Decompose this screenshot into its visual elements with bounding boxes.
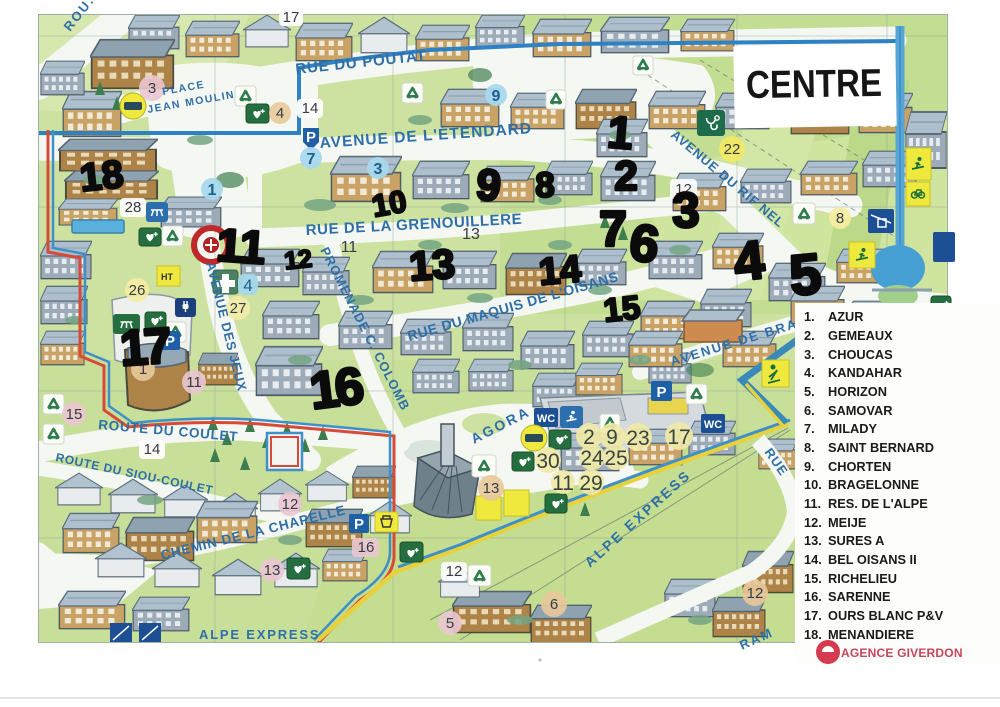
svg-text:25: 25	[604, 447, 627, 470]
svg-text:GEMEAUX: GEMEAUX	[828, 328, 893, 343]
svg-text:HT: HT	[161, 272, 173, 282]
svg-text:AZUR: AZUR	[828, 309, 864, 324]
svg-text:18.: 18.	[804, 627, 822, 642]
svg-text:3.: 3.	[804, 347, 815, 362]
svg-text:RICHELIEU: RICHELIEU	[828, 571, 897, 586]
svg-text:RES. DE L'ALPE: RES. DE L'ALPE	[828, 496, 928, 511]
svg-text:10.: 10.	[804, 477, 822, 492]
svg-text:1.: 1.	[804, 309, 815, 324]
svg-text:13.: 13.	[804, 533, 822, 548]
svg-text:7.: 7.	[804, 421, 815, 436]
svg-text:MILADY: MILADY	[828, 421, 878, 436]
svg-text:9: 9	[474, 160, 503, 211]
svg-text:3: 3	[374, 161, 383, 178]
svg-text:CHOUCAS: CHOUCAS	[828, 347, 893, 362]
svg-text:1: 1	[208, 182, 217, 199]
svg-text:23: 23	[626, 427, 649, 450]
svg-text:P: P	[354, 516, 364, 533]
svg-text:ALPE EXPRESS: ALPE EXPRESS	[199, 627, 320, 642]
svg-text:WC: WC	[537, 413, 555, 425]
svg-text:AGENCE GIVERDON: AGENCE GIVERDON	[841, 646, 963, 660]
svg-text:6: 6	[550, 596, 558, 613]
svg-text:13: 13	[264, 562, 281, 579]
svg-text:14: 14	[144, 441, 161, 458]
svg-text:11: 11	[186, 374, 202, 391]
svg-text:14: 14	[302, 100, 319, 117]
svg-text:15: 15	[66, 406, 83, 423]
svg-text:2: 2	[583, 426, 595, 449]
svg-text:15: 15	[602, 288, 642, 329]
svg-text:18: 18	[78, 153, 126, 200]
svg-text:12: 12	[282, 496, 299, 513]
svg-text:3: 3	[672, 184, 699, 238]
svg-text:P: P	[656, 384, 666, 401]
svg-text:8.: 8.	[804, 440, 815, 455]
svg-text:KANDAHAR: KANDAHAR	[828, 365, 902, 380]
svg-text:17: 17	[283, 9, 300, 26]
svg-text:11.: 11.	[804, 496, 821, 511]
svg-text:SAINT BERNARD: SAINT BERNARD	[828, 440, 934, 455]
svg-text:14.: 14.	[804, 552, 822, 567]
svg-text:12: 12	[446, 563, 463, 580]
svg-text:MEIJE: MEIJE	[828, 515, 867, 530]
svg-text:5: 5	[446, 615, 454, 632]
svg-text:SURES A: SURES A	[828, 533, 884, 548]
svg-text:13: 13	[408, 240, 457, 289]
svg-text:9: 9	[606, 426, 618, 449]
svg-text:CENTRE: CENTRE	[746, 62, 883, 107]
svg-text:16: 16	[358, 539, 375, 556]
svg-text:15.: 15.	[804, 571, 822, 586]
svg-text:24: 24	[580, 447, 604, 470]
svg-text:16.: 16.	[804, 589, 822, 604]
svg-text:17: 17	[667, 426, 690, 449]
svg-text:MENANDIERE: MENANDIERE	[828, 627, 914, 642]
svg-text:OURS BLANC P&V: OURS BLANC P&V	[828, 608, 944, 623]
svg-text:12: 12	[283, 245, 314, 276]
svg-text:4: 4	[276, 105, 284, 122]
svg-text:4: 4	[731, 230, 767, 293]
svg-text:28: 28	[125, 199, 142, 216]
svg-text:17.: 17.	[804, 608, 822, 623]
svg-text:7: 7	[599, 201, 627, 257]
svg-text:5.: 5.	[804, 384, 815, 399]
svg-text:SARENNE: SARENNE	[828, 589, 891, 604]
svg-text:11: 11	[341, 239, 358, 256]
svg-text:4.: 4.	[804, 365, 815, 380]
svg-text:4: 4	[243, 276, 252, 295]
svg-text:29: 29	[579, 472, 602, 495]
svg-text:9: 9	[492, 88, 501, 105]
svg-text:7: 7	[307, 151, 316, 168]
svg-text:SAMOVAR: SAMOVAR	[828, 403, 892, 418]
svg-text:22: 22	[724, 141, 741, 158]
svg-text:11: 11	[215, 218, 267, 273]
svg-text:CHORTEN: CHORTEN	[828, 459, 891, 474]
svg-text:30: 30	[536, 450, 559, 473]
svg-text:P: P	[306, 129, 316, 146]
svg-text:WC: WC	[704, 419, 722, 431]
svg-text:10: 10	[369, 183, 409, 223]
svg-text:HORIZON: HORIZON	[828, 384, 887, 399]
svg-text:2.: 2.	[804, 328, 815, 343]
svg-text:8: 8	[836, 210, 844, 227]
svg-text:13: 13	[483, 480, 500, 497]
svg-text:14: 14	[537, 248, 583, 294]
svg-text:12: 12	[747, 585, 764, 602]
svg-text:12.: 12.	[804, 515, 822, 530]
svg-text:5: 5	[787, 242, 824, 309]
svg-text:2: 2	[614, 152, 637, 199]
svg-text:26: 26	[129, 282, 146, 299]
svg-text:11: 11	[552, 472, 574, 495]
svg-text:3: 3	[148, 80, 156, 97]
svg-text:8: 8	[535, 166, 554, 205]
svg-text:6.: 6.	[804, 403, 815, 418]
svg-text:17: 17	[118, 317, 172, 376]
svg-text:9.: 9.	[804, 459, 815, 474]
svg-text:BRAGELONNE: BRAGELONNE	[828, 477, 919, 492]
svg-text:BEL OISANS II: BEL OISANS II	[828, 552, 917, 567]
